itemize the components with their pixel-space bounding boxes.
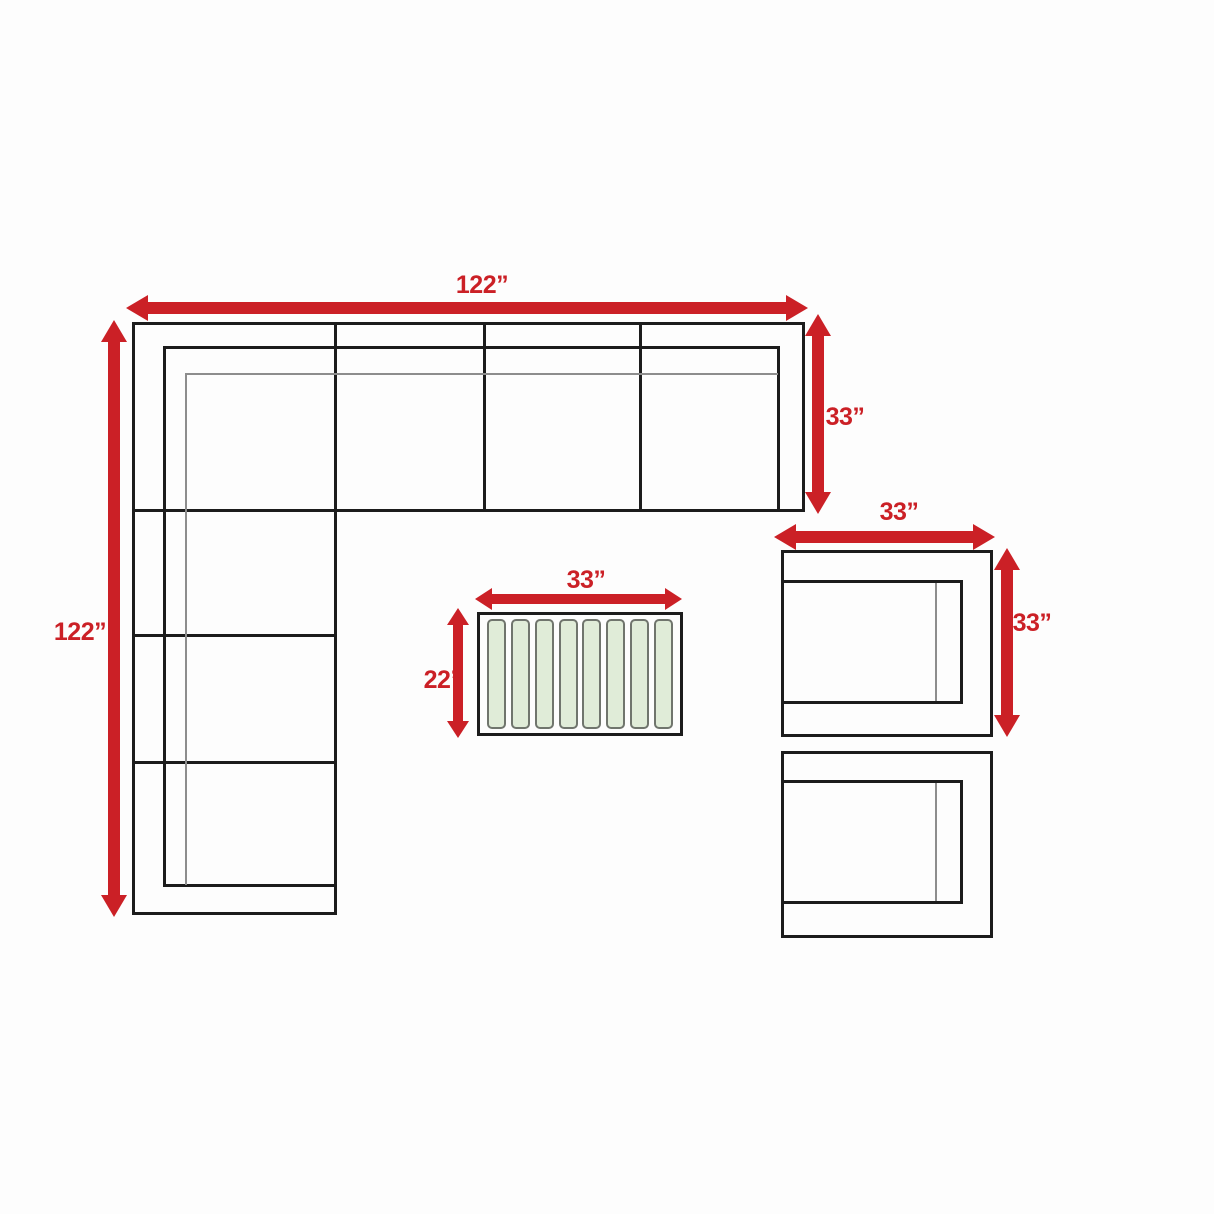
chair-depth-arrow (994, 548, 1020, 737)
table-slat (511, 619, 530, 729)
sofa-corner-seam (334, 325, 337, 512)
chair-width-arrow (774, 524, 995, 550)
table-slat (535, 619, 554, 729)
chair-width-label: 33” (849, 498, 949, 526)
chair-2-seat (781, 780, 963, 904)
sofa-length-label: 122” (30, 618, 130, 646)
chair-1-seat-crease (935, 583, 937, 701)
chair-depth-label: 33” (982, 609, 1082, 637)
table-slat (606, 619, 625, 729)
table-slat (582, 619, 601, 729)
sofa-cushion-line (185, 373, 187, 885)
table-slat (654, 619, 673, 729)
sofa-left-backrest-line (163, 346, 166, 887)
sofa-right-arm-line (777, 346, 780, 512)
sofa-cushion-line (185, 373, 778, 375)
sofa-seat-divider (639, 325, 642, 509)
chair-1-seat (781, 580, 963, 704)
sofa-width-label: 122” (432, 271, 532, 299)
furniture-dimension-diagram: 122” 122” 33” 33” 33” 33” 22” (0, 0, 1214, 1214)
sofa-top-arm-outline (132, 322, 805, 512)
table-slat (559, 619, 578, 729)
coffee-table-slats (482, 615, 678, 733)
table-depth-label: 22” (393, 666, 493, 694)
sofa-seat-divider (483, 325, 486, 509)
sofa-depth-label: 33” (795, 403, 895, 431)
table-width-label: 33” (536, 566, 636, 594)
sofa-chaise-front-line (163, 884, 337, 887)
chair-2-seat-crease (935, 783, 937, 901)
table-slat (630, 619, 649, 729)
sofa-backrest-line (163, 346, 780, 349)
coffee-table-outline (477, 612, 683, 736)
